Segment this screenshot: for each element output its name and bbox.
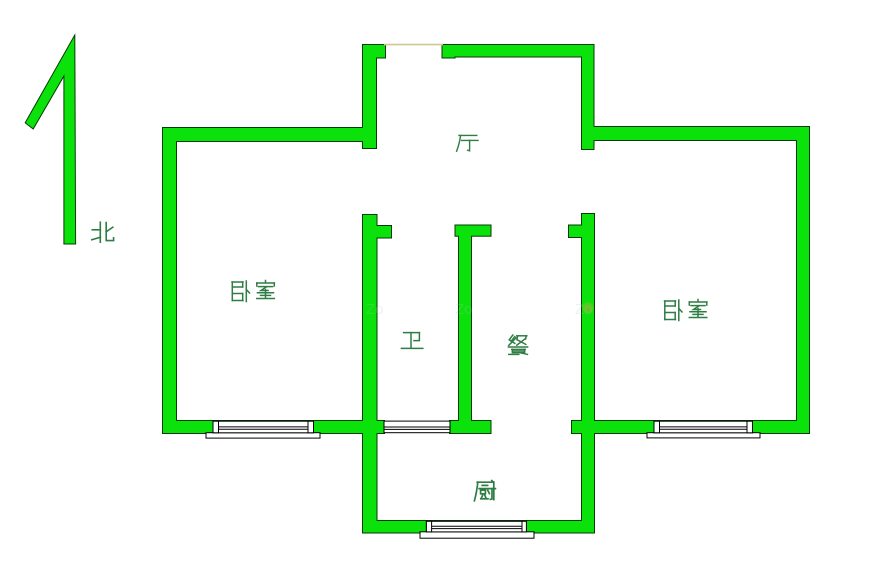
svg-text:Zo: Zo [366, 301, 384, 318]
svg-text:Zo: Zo [455, 301, 473, 318]
